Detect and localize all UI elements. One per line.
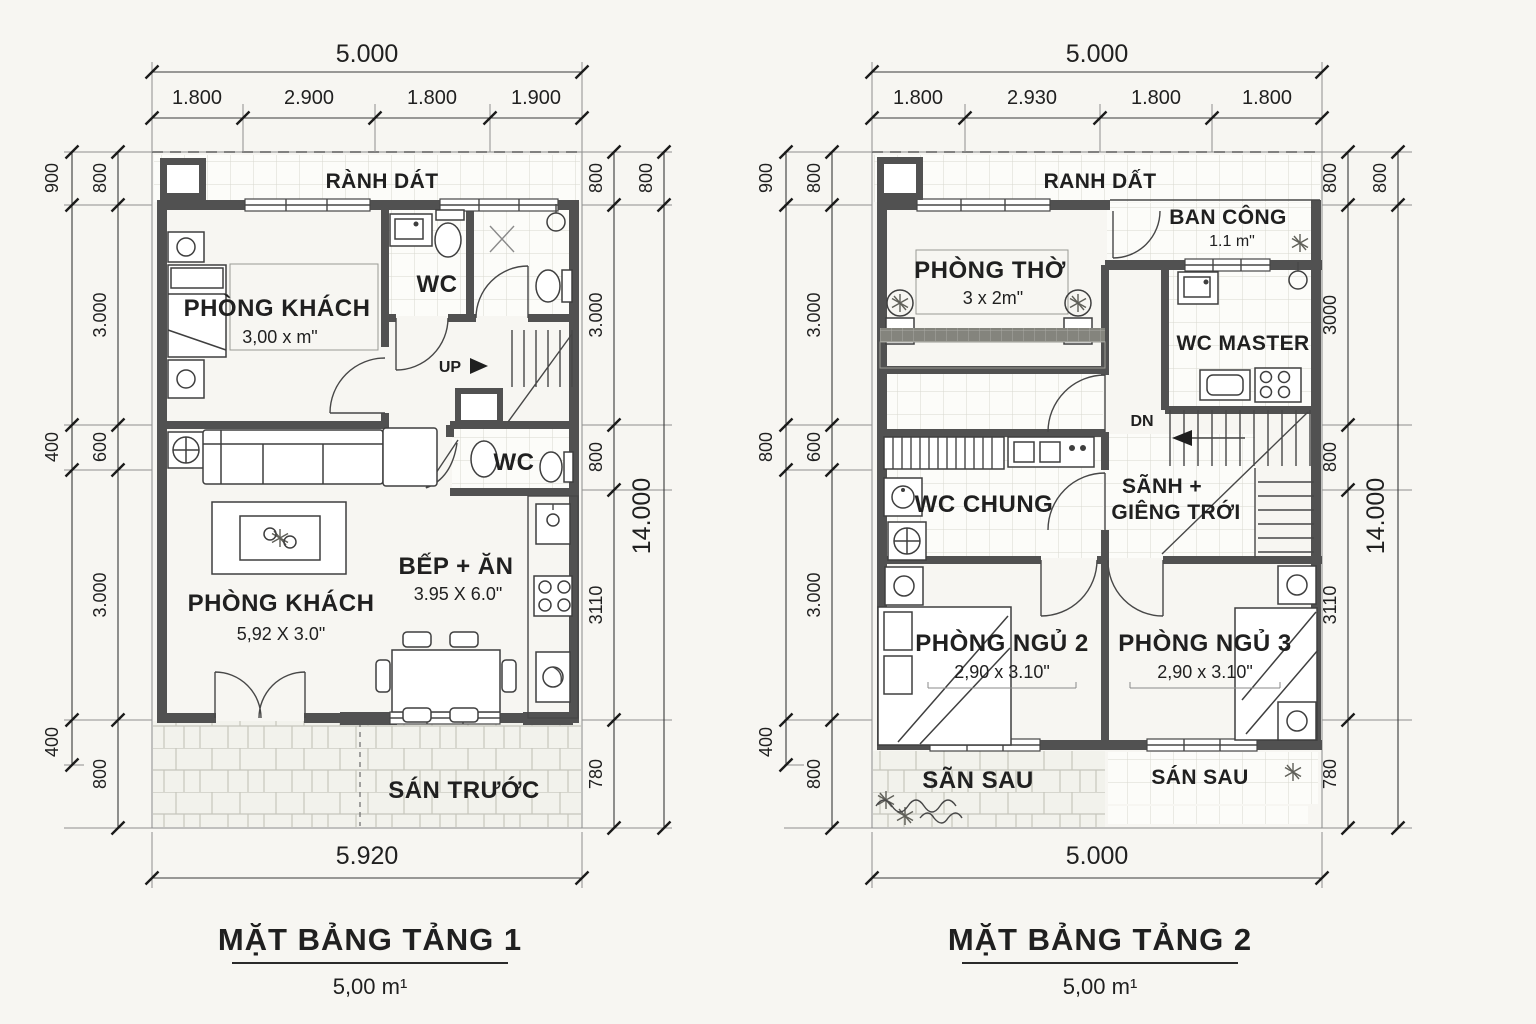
dim-bottom-total: 5.000 (1066, 842, 1129, 870)
plan2-area: 5,00 m¹ (1063, 974, 1138, 999)
plan2: 5.000 1.800 2.930 1.800 1.800 5.000 900 … (756, 40, 1412, 999)
plan1-area: 5,00 m¹ (333, 974, 408, 999)
label-wc-chung: WC CHUNG (915, 491, 1054, 518)
dim-right-inner: 3110 (1320, 586, 1340, 625)
label-living-size: 5,92 X 3.0" (237, 624, 325, 644)
label-kitchen-size: 3.95 X 6.0" (414, 584, 502, 604)
label-dn: DN (1130, 413, 1153, 430)
dim-right-outer: 800 (1370, 163, 1390, 193)
dim-top-seg: 1.800 (893, 87, 943, 109)
dim-right-inner: 780 (1320, 759, 1340, 789)
dim-top-seg: 1.800 (1131, 87, 1181, 109)
dim-top-seg: 1.800 (1242, 87, 1292, 109)
dim-top-seg: 1.800 (172, 87, 222, 109)
dim-right-inner: 780 (586, 759, 606, 789)
dim-left-inner: 600 (90, 432, 110, 462)
plan1: 5.000 1.800 2.900 1.800 1.900 5.920 900 … (42, 40, 672, 999)
dim-left-inner: 3.000 (804, 292, 824, 337)
dim-left-inner: 3.000 (90, 292, 110, 337)
label-bedroom: PHÒNG KHÁCH (184, 294, 371, 322)
dim-top-seg: 2.930 (1007, 87, 1057, 109)
dim-right-inner: 800 (1320, 442, 1340, 472)
label-up: UP (439, 359, 462, 376)
label-hall-2: GIÊNG TRỚI (1111, 500, 1240, 524)
label-hall-1: SÃNH + (1122, 475, 1202, 498)
label-balcony-size: 1.1 m" (1209, 233, 1255, 250)
dim-left-outer: 400 (756, 727, 776, 757)
label-bed3-size: 2,90 x 3.10" (1157, 662, 1252, 682)
dim-right-inner: 800 (1320, 163, 1340, 193)
dim-left-outer: 400 (42, 432, 62, 462)
dim-left-inner: 600 (804, 432, 824, 462)
dim-left-outer: 900 (756, 163, 776, 193)
dim-right-inner: 3000 (1320, 295, 1340, 335)
dim-right-inner: 3.000 (586, 292, 606, 337)
dim-top-seg: 1.900 (511, 87, 561, 109)
label-strip: RANH DẤT (1044, 170, 1157, 193)
label-strip: RÀNH DÁT (326, 170, 439, 193)
label-bed3: PHÒNG NGỦ 3 (1118, 628, 1292, 657)
label-altar-size: 3 x 2m" (963, 288, 1023, 308)
dim-right-inner: 800 (586, 163, 606, 193)
dim-left-outer: 800 (756, 432, 776, 462)
wall-pier (340, 712, 397, 725)
label-bed2-size: 2,90 x 3.10" (954, 662, 1049, 682)
label-wc1: WC (417, 271, 458, 298)
dim-left-inner: 3.000 (90, 572, 110, 617)
label-back-yard-right: SÁN SAU (1151, 766, 1248, 789)
dim-bottom-total: 5.920 (336, 842, 399, 870)
dim-right-outer: 800 (636, 163, 656, 193)
dim-right-inner: 800 (586, 442, 606, 472)
floor-plan-canvas: 5.000 1.800 2.900 1.800 1.900 5.920 900 … (0, 0, 1536, 1024)
plan1-stairs (455, 330, 572, 426)
label-back-yard-left: SÃN SAU (922, 766, 1034, 794)
label-living: PHÒNG KHÁCH (188, 589, 375, 617)
label-wc2: WC (494, 449, 535, 476)
dim-left-inner: 800 (804, 759, 824, 789)
label-altar: PHÒNG THỜ (914, 256, 1066, 284)
up-arrow-icon (470, 358, 488, 374)
dim-top-total: 5.000 (336, 40, 399, 68)
plan1-title-block: MẶT BẢNG TẢNG 1 5,00 m¹ (218, 922, 522, 999)
label-front-yard: SÁN TRƯỚC (388, 776, 540, 804)
dim-right-outer: 14.000 (628, 478, 656, 554)
plan2-title-block: MẶT BẢNG TẢNG 2 5,00 m¹ (948, 922, 1252, 999)
label-kitchen: BẾP + ĂN (399, 552, 514, 580)
dim-left-inner: 800 (90, 163, 110, 193)
dim-left-inner: 800 (804, 163, 824, 193)
dim-top-seg: 1.800 (407, 87, 457, 109)
label-bed2: PHÒNG NGỦ 2 (915, 628, 1089, 657)
label-wc-master: WC MASTER (1176, 332, 1309, 355)
label-bedroom-size: 3,00 x m" (242, 327, 317, 347)
strip-window-box-inner (884, 164, 916, 193)
plan1-title: MẶT BẢNG TẢNG 1 (218, 922, 522, 957)
strip-window-box-inner (167, 165, 199, 193)
dim-left-inner: 800 (90, 759, 110, 789)
dim-top-seg: 2.900 (284, 87, 334, 109)
dim-top-total: 5.000 (1066, 40, 1129, 68)
plan2-title: MẶT BẢNG TẢNG 2 (948, 922, 1252, 957)
plan1-kitchen-counter (528, 496, 578, 718)
dim-right-inner: 3110 (586, 586, 606, 625)
label-balcony: BAN CÔNG (1169, 205, 1287, 229)
dim-left-outer: 400 (42, 727, 62, 757)
dim-right-outer: 14.000 (1362, 478, 1390, 554)
dim-left-outer: 900 (42, 163, 62, 193)
dim-left-inner: 3.000 (804, 572, 824, 617)
